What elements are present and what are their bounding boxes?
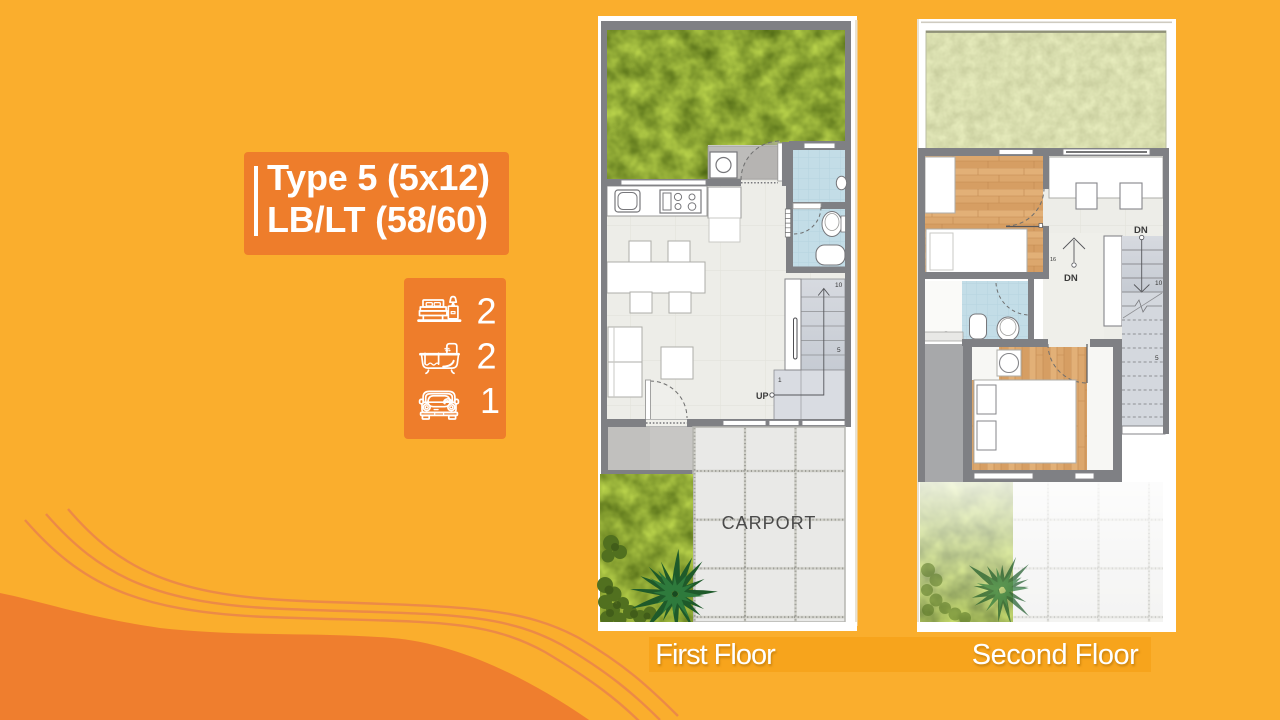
svg-text:1: 1 xyxy=(480,380,500,421)
svg-text:CARPORT: CARPORT xyxy=(722,513,817,533)
svg-text:2: 2 xyxy=(477,335,497,376)
svg-text:UP: UP xyxy=(756,391,769,401)
svg-text:5: 5 xyxy=(1155,355,1159,362)
svg-text:16: 16 xyxy=(1050,257,1056,263)
svg-text:DN: DN xyxy=(1064,273,1078,284)
svg-text:5: 5 xyxy=(837,347,841,354)
svg-text:10: 10 xyxy=(1155,280,1163,287)
svg-text:1: 1 xyxy=(778,377,782,384)
svg-text:10: 10 xyxy=(835,282,843,289)
svg-text:DN: DN xyxy=(1134,225,1148,236)
svg-text:2: 2 xyxy=(477,290,497,331)
